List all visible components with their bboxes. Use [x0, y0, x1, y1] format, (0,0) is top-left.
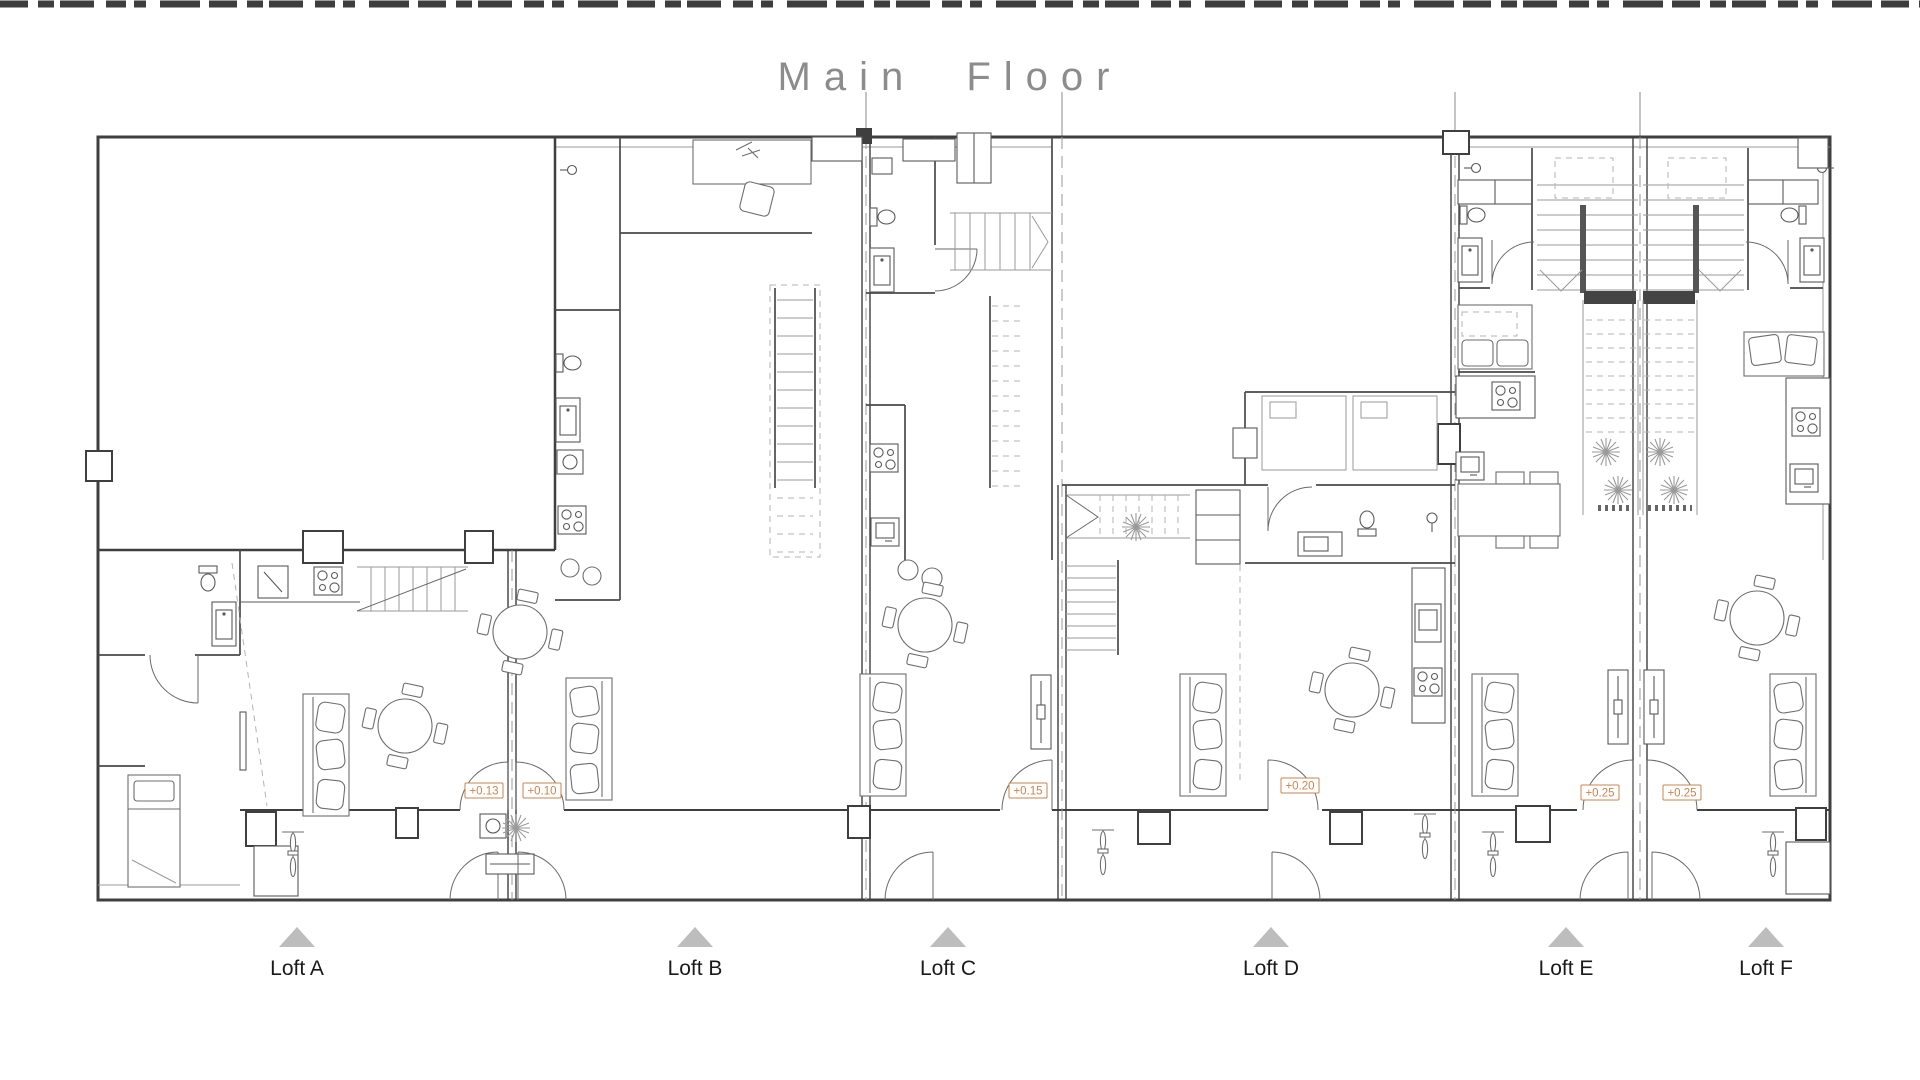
plant-icon: [502, 814, 530, 842]
toilet-icon: [1358, 511, 1376, 536]
stool: [898, 560, 918, 580]
loft-marker-b: Loft B: [668, 927, 723, 980]
sink-icon: [870, 248, 894, 292]
bench-icon: [1458, 305, 1532, 369]
loft-marker-e: Loft E: [1539, 927, 1594, 980]
sink-icon: [1458, 238, 1482, 282]
svg-text:+0.25: +0.25: [1585, 788, 1614, 800]
loft-markers: Loft A Loft B Loft C Loft D Loft E Loft …: [270, 927, 1793, 980]
loft-marker-f: Loft F: [1739, 927, 1793, 980]
stool: [561, 559, 579, 577]
section-triangle-icon: [1748, 927, 1784, 947]
stool: [583, 567, 601, 585]
nightstand: [1233, 428, 1257, 458]
sofa-icon: [566, 678, 612, 800]
double-bed-icon: [1262, 396, 1437, 470]
round-table-icon: [1309, 647, 1395, 733]
bicycle-icon: [1762, 832, 1784, 877]
bench-icon: [1744, 332, 1824, 376]
section-triangle-icon: [1548, 927, 1584, 947]
closet: [812, 137, 862, 161]
door-arc-icon: [1268, 487, 1312, 531]
porch-step: [1786, 842, 1830, 894]
svg-text:+0.20: +0.20: [1285, 781, 1314, 793]
section-triangle-icon: [279, 927, 315, 947]
section-triangle-icon: [677, 927, 713, 947]
plant-icon: [1646, 438, 1674, 466]
stairs-icon: [1643, 185, 1744, 515]
elevation-marker: +0.25: [1581, 785, 1619, 800]
loft-label: Loft D: [1243, 957, 1299, 980]
round-table-icon: [882, 582, 968, 668]
svg-text:+0.15: +0.15: [1013, 786, 1042, 798]
door-arc-icon: [1746, 240, 1788, 284]
toilet-icon: [1460, 206, 1485, 224]
elevation-marker: +0.13: [465, 783, 503, 798]
stove-icon: [1414, 668, 1442, 696]
toilet-icon: [199, 566, 217, 591]
section-triangle-icon: [1253, 927, 1289, 947]
loft-label: Loft A: [270, 957, 324, 980]
stairs-icon: [770, 285, 820, 557]
svg-text:+0.10: +0.10: [527, 786, 556, 798]
round-table-icon: [1714, 575, 1800, 661]
round-table-icon: [477, 589, 563, 675]
round-table-icon: [362, 683, 448, 769]
street-door-arc-icon: [1580, 852, 1628, 900]
stove-icon: [870, 444, 898, 472]
column: [465, 531, 493, 563]
kitchen-sink-icon: [1790, 464, 1818, 492]
faucet-icon: [1427, 513, 1437, 532]
section-triangle-icon: [930, 927, 966, 947]
elevation-marker: +0.10: [523, 783, 561, 798]
street-door-arc-icon: [1272, 852, 1320, 900]
sofa-icon: [860, 674, 906, 796]
tv-icon: [1608, 670, 1628, 744]
closet: [1196, 490, 1240, 564]
washer-icon: [557, 450, 583, 474]
tv-icon: [240, 712, 246, 770]
sofa-icon: [1770, 674, 1816, 796]
door-arc-icon: [150, 655, 198, 703]
party-wall-a-b: [508, 550, 516, 900]
loft-a-unit: [98, 550, 508, 900]
elevation-marker: +0.20: [1281, 778, 1319, 793]
planter: [396, 808, 418, 838]
office-chair-icon: [739, 181, 775, 217]
planter: [1330, 812, 1362, 844]
planter: [848, 806, 870, 838]
door-arc-icon: [1492, 240, 1534, 284]
street-door-arc-icon: [885, 852, 933, 900]
stairs-icon: [1537, 185, 1638, 515]
kitchen-sink-icon: [1415, 604, 1441, 642]
toilet-icon: [1781, 206, 1806, 224]
shower-icon: [560, 166, 577, 175]
column: [86, 451, 112, 481]
closet: [903, 139, 955, 161]
tv-icon: [1031, 675, 1051, 749]
porch-step: [246, 812, 276, 846]
bicycle-icon: [1092, 830, 1114, 875]
closet: [1748, 138, 1828, 204]
loft-marker-a: Loft A: [270, 927, 324, 980]
elevation-marker: +0.25: [1663, 785, 1701, 800]
stove-icon: [314, 567, 342, 595]
sink-icon: [872, 158, 892, 174]
desk-icon: [693, 140, 811, 217]
stairs-icon: [357, 567, 468, 611]
elevation-marker: +0.15: [1009, 783, 1047, 798]
sink-icon: [1800, 238, 1824, 282]
loft-label: Loft E: [1539, 957, 1594, 980]
toilet-icon: [556, 354, 581, 372]
plant-icon: [1122, 513, 1150, 541]
sink-icon: [1298, 532, 1342, 556]
loft-d-unit: [1062, 392, 1455, 900]
sink-icon: [212, 602, 236, 646]
plant-icon: [1592, 438, 1620, 466]
kitchen-sink-icon: [1456, 452, 1484, 480]
dining-table-icon: [1458, 472, 1560, 548]
loft-label: Loft B: [668, 957, 723, 980]
bed-icon: [128, 775, 180, 887]
toilet-icon: [870, 208, 895, 226]
page-title: Main Floor: [778, 55, 1123, 99]
planter: [1516, 806, 1550, 842]
bicycle-icon: [1414, 814, 1436, 859]
sofa-icon: [1472, 674, 1518, 796]
stove-icon: [558, 506, 586, 534]
column: [303, 531, 343, 563]
street-door-arc-icon: [1652, 852, 1700, 900]
sink-icon: [556, 398, 580, 442]
party-wall-e-f: [1633, 137, 1647, 900]
loft-label: Loft C: [920, 957, 976, 980]
planter: [1138, 812, 1170, 844]
loft-label: Loft F: [1739, 957, 1793, 980]
closet: [1458, 180, 1532, 204]
stove-icon: [1792, 408, 1820, 436]
bicycle-icon: [1482, 832, 1504, 877]
sofa-icon: [303, 694, 349, 816]
loft-marker-d: Loft D: [1243, 927, 1299, 980]
svg-text:+0.25: +0.25: [1667, 788, 1696, 800]
washer-icon: [480, 814, 506, 838]
floor-plan-page: Main Floor: [0, 0, 1920, 1080]
shower-icon: [1464, 164, 1481, 173]
sofa-icon: [1180, 674, 1226, 796]
kitchen-counter: [1412, 568, 1445, 723]
kitchen-sink-icon: [871, 518, 899, 546]
svg-text:+0.13: +0.13: [469, 786, 498, 798]
floor-plan-canvas: Main Floor: [0, 0, 1920, 1080]
plant-icon: [1660, 476, 1688, 504]
party-wall-c-d: [1058, 137, 1066, 900]
plant-icon: [1604, 476, 1632, 504]
loft-marker-c: Loft C: [920, 927, 976, 980]
stove-icon: [1492, 382, 1520, 410]
tv-icon: [1644, 670, 1664, 744]
stairs-icon: [950, 213, 1052, 488]
planter: [1796, 808, 1826, 840]
